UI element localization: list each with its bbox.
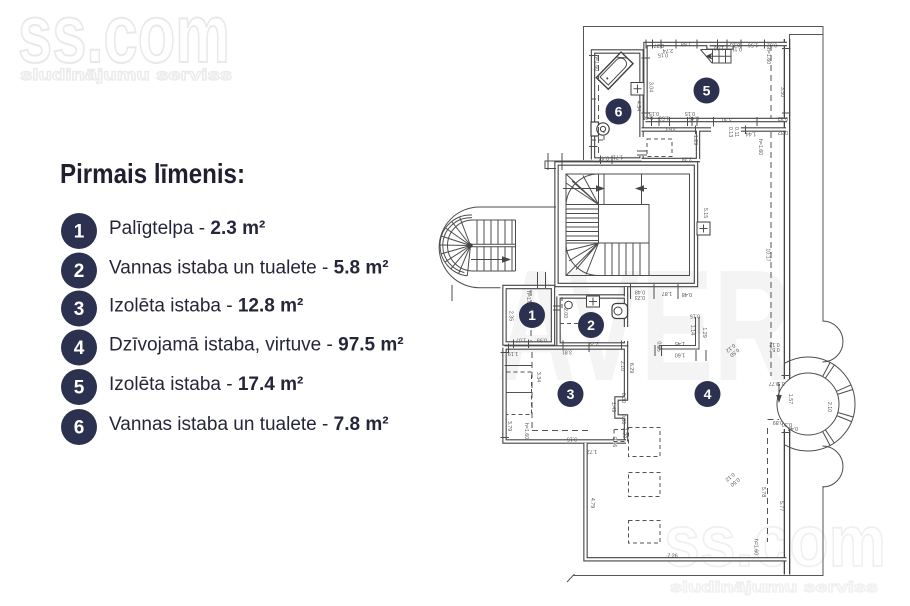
- svg-text:1.20: 1.20: [621, 428, 627, 438]
- svg-text:Izolēta istaba - 12.8 m²: Izolēta istaba - 12.8 m²: [109, 295, 303, 316]
- svg-text:0.30: 0.30: [620, 393, 626, 403]
- svg-text:0.11: 0.11: [733, 127, 739, 137]
- svg-text:6: 6: [615, 104, 623, 120]
- svg-text:5.78: 5.78: [760, 487, 766, 497]
- svg-text:3.63: 3.63: [666, 126, 676, 132]
- svg-text:5: 5: [703, 83, 711, 99]
- svg-text:6.29: 6.29: [628, 363, 634, 373]
- svg-text:3.15: 3.15: [567, 436, 577, 442]
- svg-text:2.00: 2.00: [562, 308, 568, 318]
- svg-text:1.00: 1.00: [714, 44, 724, 50]
- svg-text:sludinājumu serviss: sludinājumu serviss: [20, 67, 232, 84]
- svg-text:1.56: 1.56: [748, 42, 758, 48]
- svg-text:0.15: 0.15: [649, 110, 659, 116]
- svg-text:0.32: 0.32: [778, 115, 788, 121]
- svg-text:Vannas istaba un tualete - 7.8: Vannas istaba un tualete - 7.8 m²: [109, 414, 389, 435]
- svg-text:2.28: 2.28: [682, 156, 692, 162]
- svg-text:2: 2: [587, 317, 595, 333]
- svg-text:1.07: 1.07: [516, 337, 526, 343]
- svg-text:5: 5: [74, 378, 85, 399]
- svg-text:0.89: 0.89: [773, 419, 783, 425]
- svg-text:Dzīvojamā istaba, virtuve - 97: Dzīvojamā istaba, virtuve - 97.5 m²: [109, 334, 404, 355]
- svg-text:Pirmais līmenis:: Pirmais līmenis:: [60, 158, 245, 189]
- svg-text:h=1.60: h=1.60: [523, 423, 529, 439]
- svg-text:3.50: 3.50: [779, 87, 785, 97]
- svg-text:h=1.60: h=1.60: [757, 139, 763, 155]
- svg-text:1.14: 1.14: [689, 325, 695, 335]
- svg-text:5.77: 5.77: [778, 501, 784, 511]
- svg-text:1.19: 1.19: [508, 350, 518, 356]
- svg-text:3.30: 3.30: [722, 116, 732, 122]
- svg-text:1.68: 1.68: [681, 41, 691, 47]
- svg-text:7.26: 7.26: [667, 554, 677, 560]
- svg-text:0.27: 0.27: [654, 42, 664, 48]
- svg-text:0.47: 0.47: [599, 155, 609, 161]
- svg-text:1.57: 1.57: [787, 394, 793, 404]
- svg-text:0.13: 0.13: [727, 127, 733, 137]
- svg-text:6: 6: [74, 418, 85, 439]
- svg-text:1.72: 1.72: [587, 448, 597, 454]
- svg-text:1.29: 1.29: [701, 327, 707, 337]
- svg-text:2.10: 2.10: [826, 402, 832, 412]
- svg-text:0.46: 0.46: [689, 115, 699, 121]
- svg-text:1.53: 1.53: [659, 115, 669, 121]
- svg-text:0.48: 0.48: [682, 291, 692, 297]
- svg-text:1.60: 1.60: [675, 352, 685, 358]
- svg-text:1: 1: [528, 307, 536, 323]
- svg-text:0.48: 0.48: [788, 425, 798, 431]
- svg-text:0.23: 0.23: [635, 294, 645, 300]
- svg-text:3: 3: [567, 386, 575, 402]
- svg-text:3.34: 3.34: [535, 372, 541, 382]
- svg-text:2.79: 2.79: [589, 340, 599, 346]
- svg-text:0.11: 0.11: [732, 46, 742, 52]
- svg-text:3: 3: [74, 299, 85, 320]
- svg-text:2.35: 2.35: [508, 311, 514, 321]
- svg-text:ss.com: ss.com: [664, 502, 886, 582]
- svg-text:0.32: 0.32: [767, 42, 777, 48]
- svg-text:0.32: 0.32: [778, 129, 788, 135]
- svg-text:h=1.60: h=1.60: [753, 539, 759, 555]
- svg-text:0.12: 0.12: [769, 341, 779, 347]
- svg-text:3.79: 3.79: [506, 421, 512, 431]
- svg-text:0.48: 0.48: [635, 289, 645, 295]
- svg-text:0.99: 0.99: [537, 337, 547, 343]
- svg-text:Palīgtelpa - 2.3 m²: Palīgtelpa - 2.3 m²: [109, 218, 265, 239]
- svg-text:1.44: 1.44: [746, 131, 756, 137]
- svg-text:Izolēta istaba - 17.4 m²: Izolēta istaba - 17.4 m²: [109, 374, 303, 395]
- svg-text:1.29: 1.29: [692, 135, 698, 145]
- svg-text:3.04: 3.04: [648, 82, 654, 92]
- svg-text:sludinājumu serviss: sludinājumu serviss: [670, 579, 878, 596]
- svg-text:4: 4: [74, 338, 85, 359]
- svg-text:1.71: 1.71: [613, 154, 623, 160]
- svg-text:4: 4: [704, 386, 712, 402]
- svg-text:2.10: 2.10: [619, 361, 625, 371]
- svg-text:AVER: AVER: [497, 238, 792, 414]
- svg-text:0.15: 0.15: [658, 52, 668, 58]
- svg-text:0.30: 0.30: [620, 414, 626, 424]
- svg-text:0.9: 0.9: [777, 380, 784, 386]
- svg-text:4.79: 4.79: [589, 498, 595, 508]
- svg-text:h=1.60: h=1.60: [593, 55, 599, 71]
- svg-text:10.17: 10.17: [765, 248, 771, 261]
- svg-text:3.81: 3.81: [562, 349, 572, 355]
- svg-text:4.54: 4.54: [635, 101, 641, 111]
- svg-text:2: 2: [74, 261, 85, 282]
- svg-text:h=1.60: h=1.60: [765, 48, 771, 64]
- svg-text:1.49: 1.49: [610, 402, 616, 412]
- svg-text:5.15: 5.15: [702, 208, 708, 218]
- svg-text:Vannas istaba un tualete - 5.8: Vannas istaba un tualete - 5.8 m²: [109, 257, 389, 278]
- svg-text:1: 1: [74, 222, 85, 243]
- svg-text:1.87: 1.87: [662, 290, 672, 296]
- svg-text:0.46: 0.46: [611, 437, 617, 447]
